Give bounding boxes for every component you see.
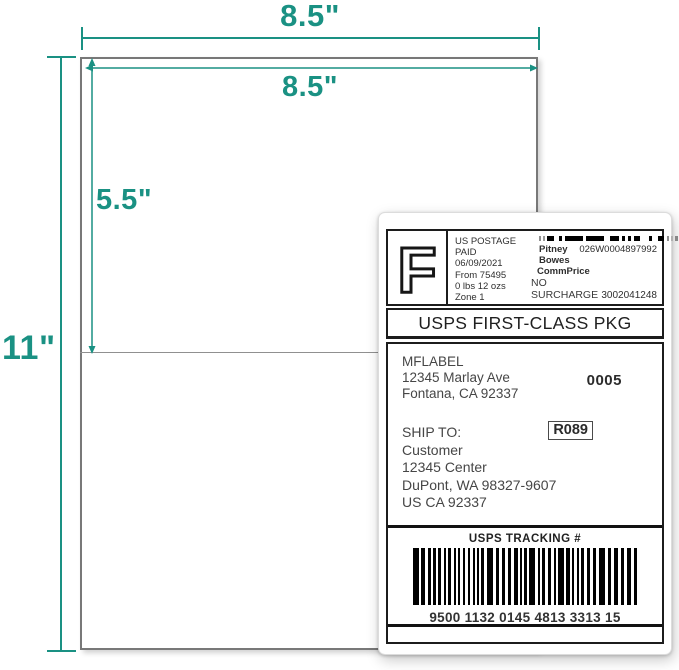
postage-indicia-box: F US POSTAGE PAID 06/09/2021 From 75495 … xyxy=(386,229,664,306)
shipping-label-card: F US POSTAGE PAID 06/09/2021 From 75495 … xyxy=(378,212,672,655)
label-width-label: 8.5" xyxy=(255,71,365,104)
account-number: 3002041248 xyxy=(601,290,657,301)
rate-block: CommPrice NO SURCHARGE xyxy=(537,266,601,301)
recipient-country: US CA 92337 xyxy=(402,494,662,512)
indicia-letter-f: F xyxy=(394,236,440,300)
sheet-height-label: 11" xyxy=(2,329,56,368)
postage-info-cell: US POSTAGE PAID 06/09/2021 From 75495 0 … xyxy=(448,231,662,304)
recipient-name: Customer xyxy=(402,442,662,460)
recipient-city: DuPont, WA 98327-9607 xyxy=(402,477,662,495)
sender-city: Fontana, CA 92337 xyxy=(402,386,662,402)
postage-line: 06/09/2021 xyxy=(455,258,539,269)
postage-line: PAID xyxy=(455,247,539,258)
tracking-number: 9500 1132 0145 4813 3313 15 xyxy=(388,610,662,625)
batch-number: 0005 xyxy=(587,372,622,389)
rate-name: CommPrice xyxy=(537,266,601,277)
postage-line: 0 lbs 12 ozs xyxy=(455,281,539,292)
rate-row: CommPrice NO SURCHARGE 3002041248 xyxy=(539,266,657,301)
postage-line: Zone 1 xyxy=(455,292,539,303)
carrier-name: Pitney Bowes xyxy=(539,244,579,266)
ship-to-heading: SHIP TO: xyxy=(402,424,662,442)
meter-id: 026W0004897992 xyxy=(579,244,657,255)
recipient-address: SHIP TO: Customer 12345 Center DuPont, W… xyxy=(402,424,662,512)
tracking-heading: USPS TRACKING # xyxy=(388,533,662,545)
product-diagram: 8.5" 8.5" 5.5" 11" F US POSTAGE PAID 06/… xyxy=(0,0,679,670)
postage-line: From 75495 xyxy=(455,270,539,281)
address-box: MFLABEL 12345 Marlay Ave Fontana, CA 923… xyxy=(386,342,664,644)
sheet-width-label: 8.5" xyxy=(255,0,365,34)
tracking-section: USPS TRACKING # 9500 1132 0145 4813 3313… xyxy=(388,528,662,624)
label-footer-space xyxy=(388,627,662,642)
sender-address: MFLABEL 12345 Marlay Ave Fontana, CA 923… xyxy=(402,354,662,402)
addresses-section: MFLABEL 12345 Marlay Ave Fontana, CA 923… xyxy=(388,344,662,525)
surcharge-text: NO SURCHARGE xyxy=(531,277,601,301)
meter-barcode xyxy=(539,236,679,241)
label-height-label: 5.5" xyxy=(96,184,152,217)
recipient-street: 12345 Center xyxy=(402,459,662,477)
postage-details: US POSTAGE PAID 06/09/2021 From 75495 0 … xyxy=(455,236,539,301)
tracking-barcode xyxy=(412,548,638,605)
sender-name: MFLABEL xyxy=(402,354,662,370)
postage-line: US POSTAGE xyxy=(455,236,539,247)
indicia-letter-cell: F xyxy=(388,231,448,304)
route-code-badge: R089 xyxy=(548,421,593,440)
meter-cell: Pitney Bowes 026W0004897992 CommPrice NO… xyxy=(539,236,657,301)
carrier-row: Pitney Bowes 026W0004897992 xyxy=(539,244,657,266)
sender-street: 12345 Marlay Ave xyxy=(402,370,662,386)
service-class-banner: USPS FIRST-CLASS PKG xyxy=(386,308,664,339)
indicia-letter-text: F xyxy=(397,236,436,300)
